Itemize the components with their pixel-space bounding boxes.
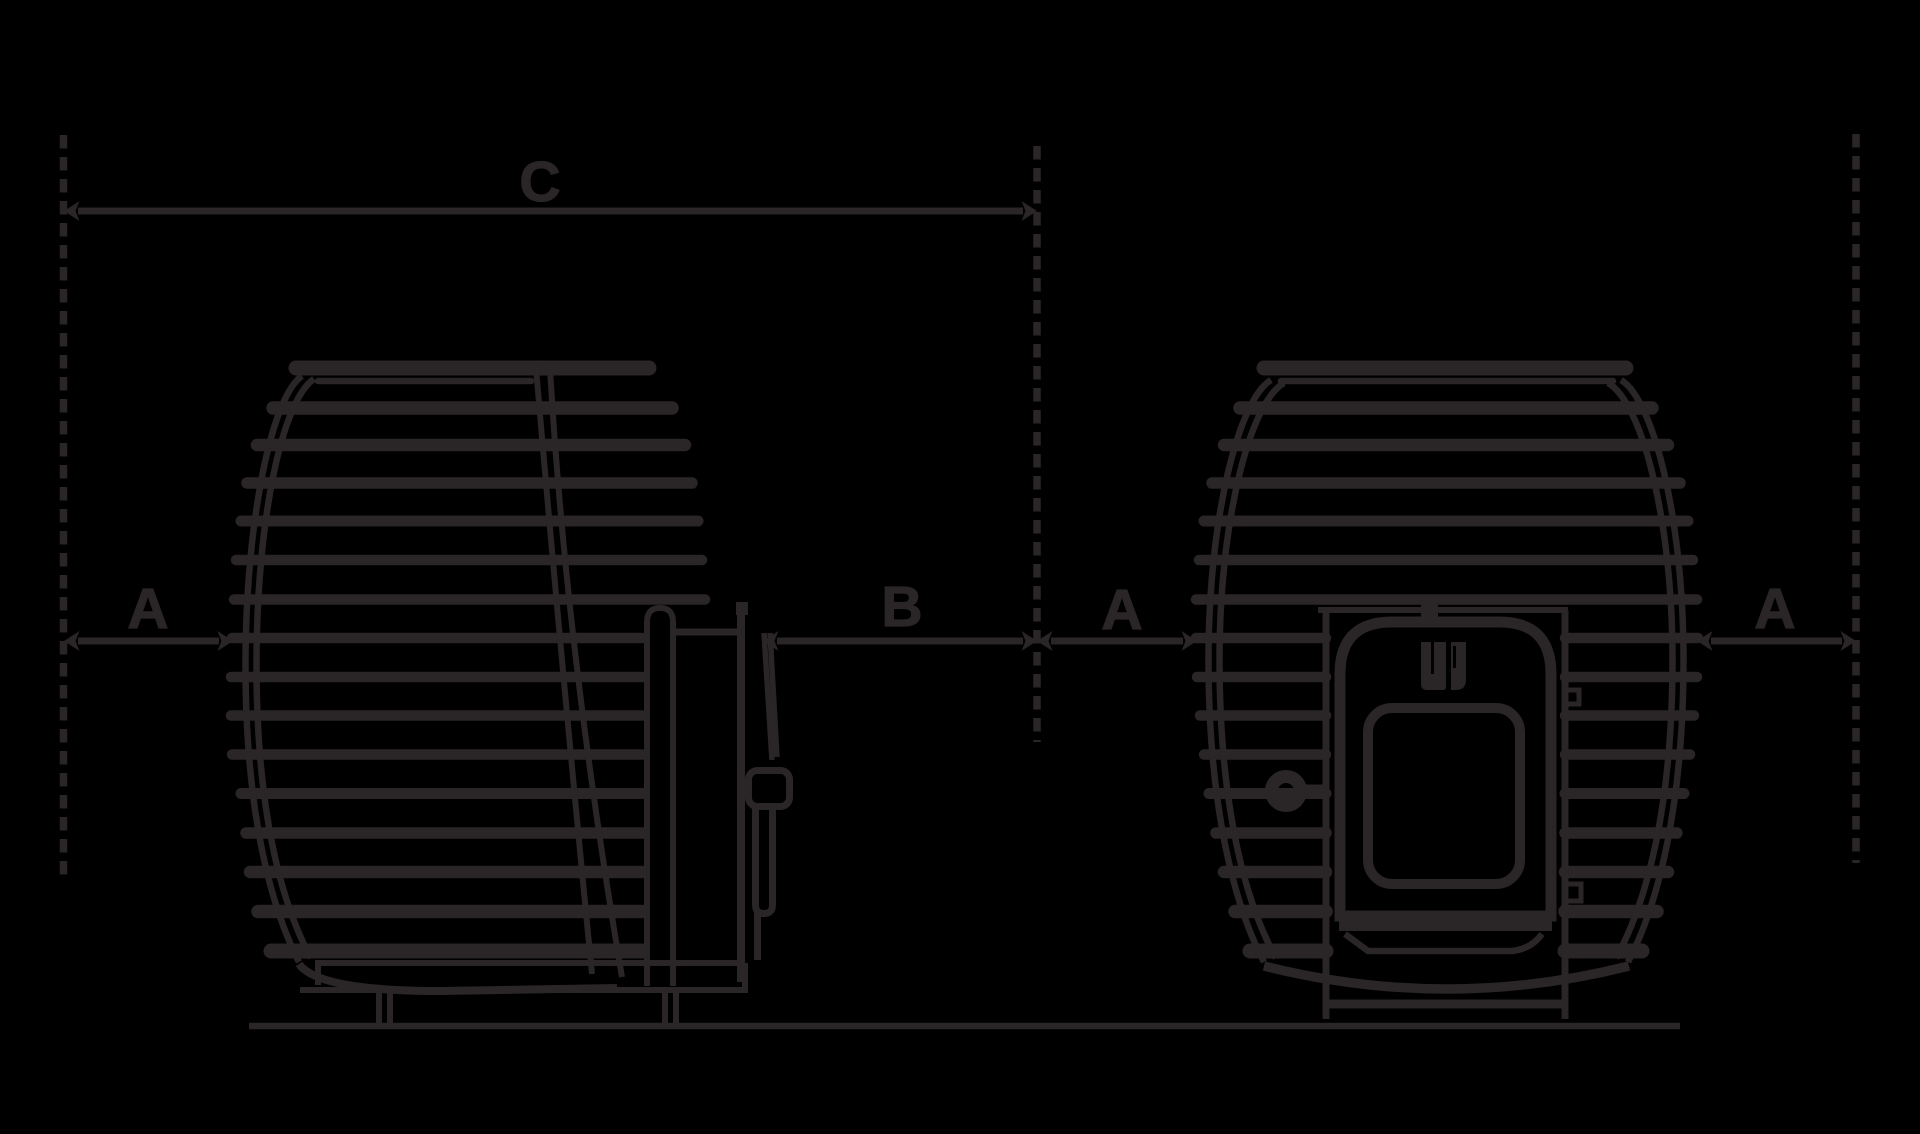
svg-text:C: C bbox=[519, 150, 560, 214]
svg-text:B: B bbox=[881, 575, 922, 639]
svg-text:A: A bbox=[1754, 577, 1795, 641]
svg-text:A: A bbox=[127, 577, 168, 641]
svg-text:A: A bbox=[1101, 578, 1142, 642]
